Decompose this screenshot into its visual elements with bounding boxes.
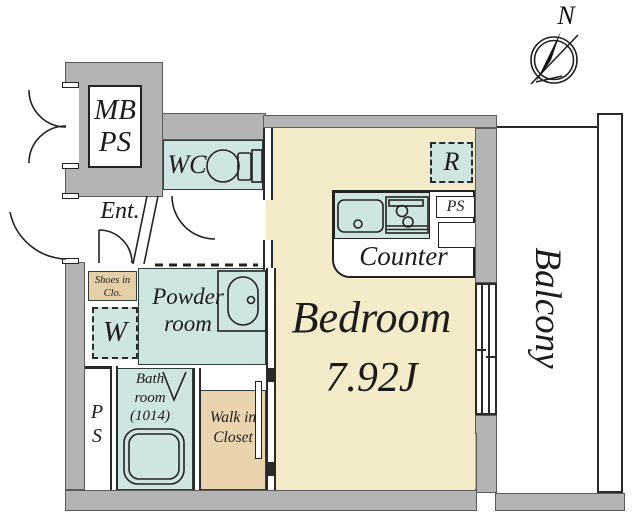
bath-pan-inner bbox=[129, 434, 179, 479]
stove-top-bar bbox=[389, 200, 423, 206]
tub-faucet-icon bbox=[248, 297, 255, 304]
entry-inner-door-arc bbox=[99, 230, 132, 263]
toilet-tank-icon bbox=[252, 150, 262, 182]
genkan-step-line bbox=[133, 196, 147, 264]
mbps-door-arc-lower bbox=[29, 126, 66, 163]
wc-door-arc bbox=[172, 196, 215, 239]
compass-rose: N bbox=[531, 1, 578, 84]
tub-icon bbox=[228, 277, 258, 325]
mbps-door-arc-upper bbox=[29, 90, 66, 127]
stove-burner-icon bbox=[397, 206, 408, 217]
genkan-step-line bbox=[144, 196, 158, 264]
entrance-door-arc bbox=[10, 212, 66, 259]
bath-pan-outer bbox=[124, 429, 184, 484]
bath-folding-door bbox=[163, 372, 186, 400]
toilet-seat-icon bbox=[238, 153, 251, 180]
floor-plan: N MB PS WC Ent. Shoes in Clo. W Powder r… bbox=[0, 0, 640, 524]
plan-linework: N bbox=[0, 0, 640, 524]
compass-north-label: N bbox=[556, 1, 576, 30]
sink-drain-icon bbox=[354, 220, 362, 228]
toilet-bowl-icon bbox=[207, 150, 239, 182]
